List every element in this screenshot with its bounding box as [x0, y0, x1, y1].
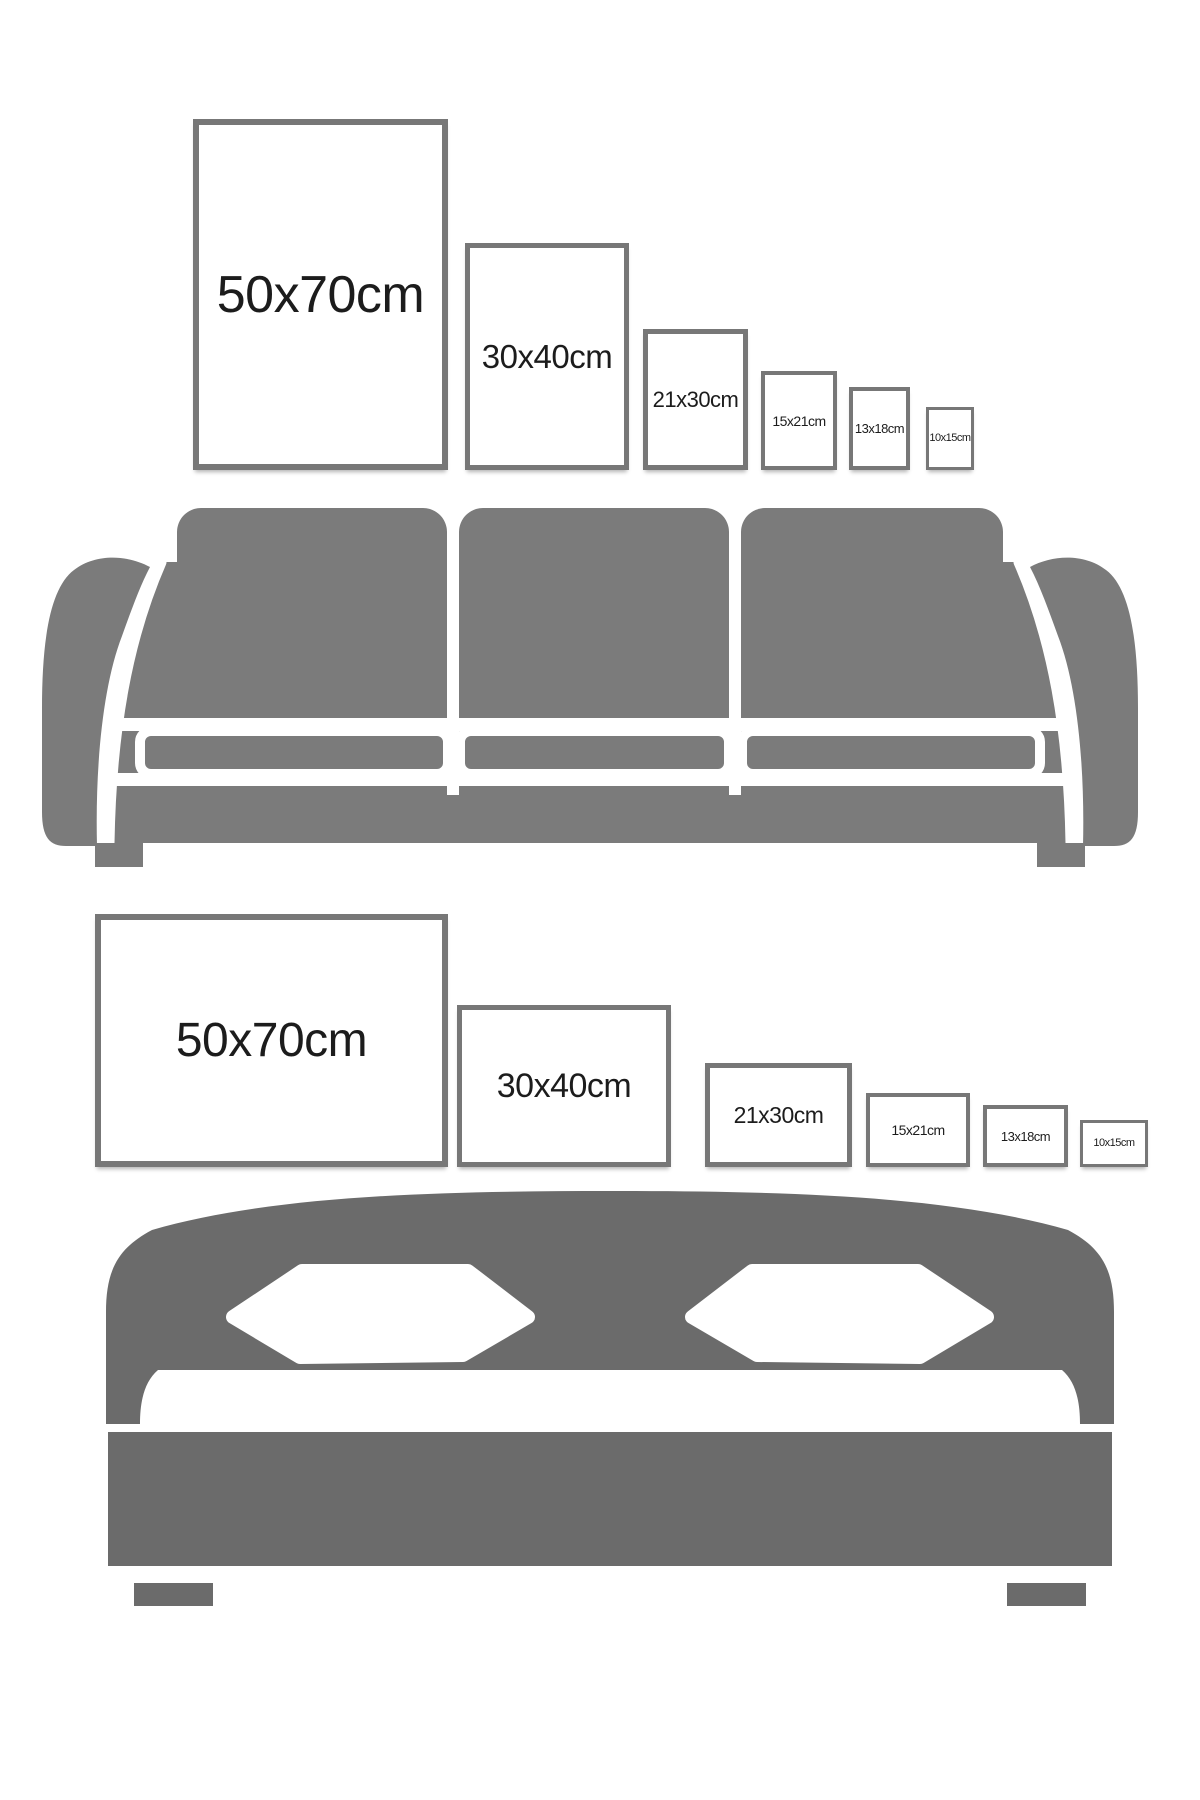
size-frame-15x21-landscape: 15x21cm — [866, 1093, 970, 1167]
size-frame-10x15-landscape: 10x15cm — [1080, 1120, 1148, 1167]
size-frame-15x21-portrait: 15x21cm — [761, 371, 837, 470]
size-frame-50x70-landscape: 50x70cm — [95, 914, 448, 1167]
size-label: 50x70cm — [176, 1017, 367, 1065]
size-label: 30x40cm — [482, 340, 612, 373]
size-label: 21x30cm — [653, 389, 739, 411]
size-frame-13x18-portrait: 13x18cm — [849, 387, 910, 470]
size-label: 15x21cm — [772, 414, 825, 428]
bed-illustration — [106, 1191, 1114, 1606]
size-frame-13x18-landscape: 13x18cm — [983, 1105, 1068, 1167]
bed-icon — [40, 1185, 1160, 1610]
size-frame-30x40-portrait: 30x40cm — [465, 243, 629, 470]
size-label: 15x21cm — [891, 1123, 944, 1137]
size-frame-30x40-landscape: 30x40cm — [457, 1005, 671, 1167]
size-label: 50x70cm — [217, 269, 425, 321]
size-label: 13x18cm — [1001, 1130, 1050, 1143]
sofa-icon — [40, 500, 1160, 875]
sofa-illustration — [108, 508, 1072, 843]
size-frame-21x30-portrait: 21x30cm — [643, 329, 748, 470]
size-label: 30x40cm — [497, 1069, 631, 1103]
sofa-seat-cushions — [140, 731, 1040, 774]
size-frame-50x70-portrait: 50x70cm — [193, 119, 448, 470]
size-label: 10x15cm — [929, 433, 970, 444]
size-frame-10x15-portrait: 10x15cm — [926, 407, 974, 470]
size-frame-21x30-landscape: 21x30cm — [705, 1063, 852, 1167]
size-label: 13x18cm — [855, 422, 904, 435]
size-label: 21x30cm — [734, 1104, 824, 1127]
size-label: 10x15cm — [1093, 1138, 1134, 1149]
